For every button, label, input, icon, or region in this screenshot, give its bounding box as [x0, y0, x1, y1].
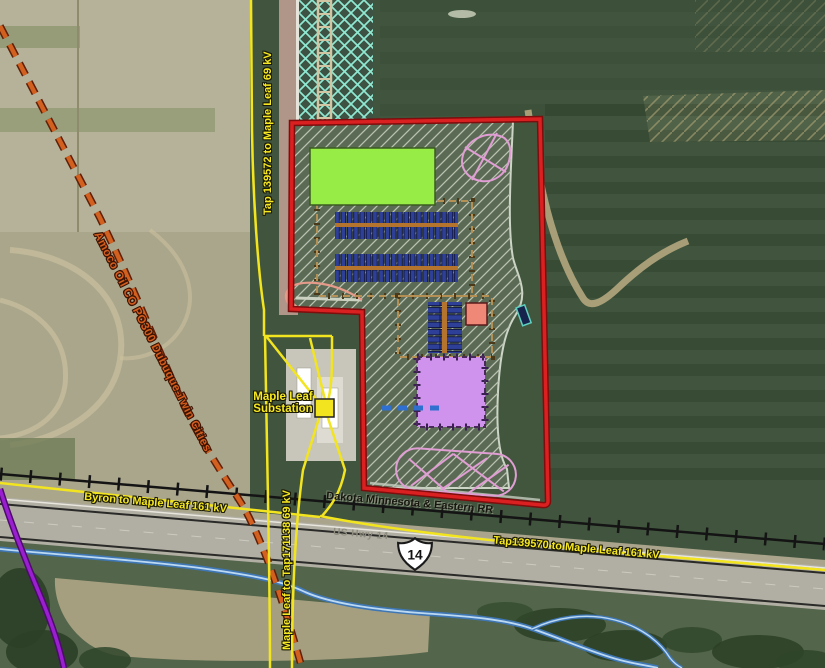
new-substation-pad [417, 357, 485, 427]
site-map: Tap 139572 to Maple Leaf 69 kV Amoco Oil… [0, 0, 825, 668]
existing-transmission-corridor [297, 0, 373, 123]
equipment-row-2 [335, 254, 458, 282]
us-highway-14-shield: 14 [396, 537, 434, 571]
substation-symbol [315, 399, 334, 417]
proposed-building [310, 148, 435, 205]
shield-number: 14 [407, 547, 423, 562]
equipment-row-1 [335, 212, 458, 239]
equipment-rack-small [428, 302, 462, 353]
control-enclosure [466, 303, 487, 325]
